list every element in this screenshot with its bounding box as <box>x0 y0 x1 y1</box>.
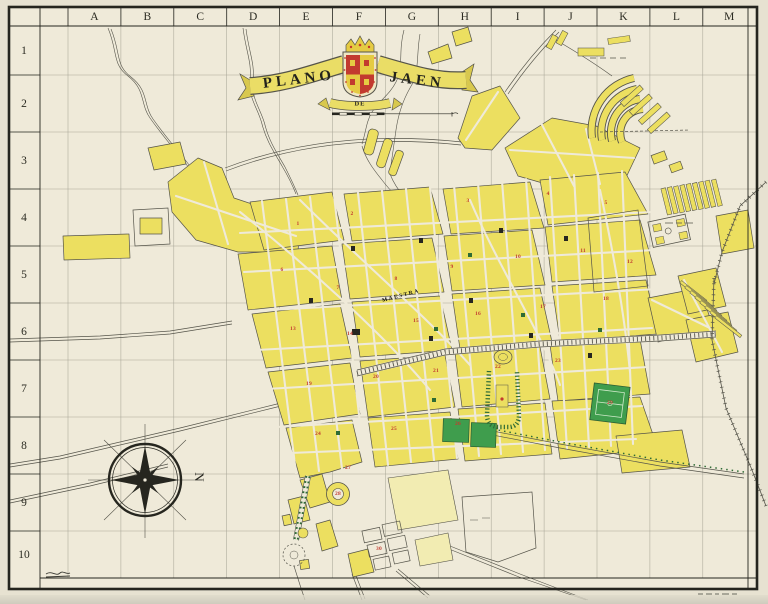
park-block <box>443 419 470 443</box>
stadium <box>590 383 630 424</box>
scan-edge-shadow <box>0 595 768 604</box>
city-map-graphic <box>0 0 768 604</box>
ribbon-de <box>330 103 390 106</box>
map-sheet: ABCDEFGHIJKLM 12345678910 12345678910111… <box>0 0 768 604</box>
park-block <box>471 423 497 448</box>
